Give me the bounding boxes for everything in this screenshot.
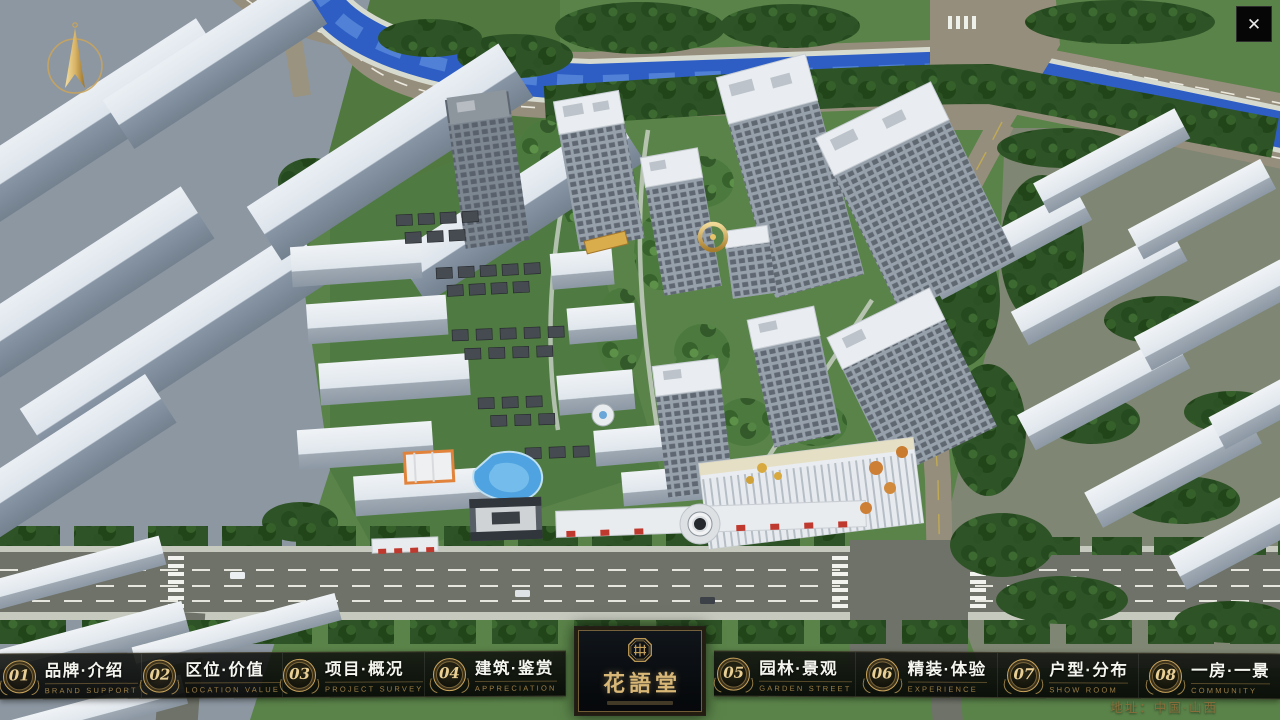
menu-item-interior-experience[interactable]: 06 精装·体验EXPERIENCE — [856, 652, 998, 697]
project-address: 地址：中国·山西 — [1110, 697, 1218, 716]
menu-label-zh: 品牌·介绍 — [45, 657, 124, 681]
menu-label-en: APPRECIATION — [475, 681, 557, 693]
menu-item-architecture[interactable]: 04 建筑·鉴赏APPRECIATION — [425, 652, 567, 697]
menu-number-badge: 08 — [1149, 659, 1182, 692]
nav-group-left: 01 品牌·介绍BRAND SUPPORT 02 区位·价值LOCATION V… — [0, 651, 566, 700]
menu-item-project-overview[interactable]: 03 项目·概况PROJECT SURVEY — [283, 652, 425, 697]
project-name: 花語堂 — [603, 666, 681, 698]
menu-label-en: BRAND SUPPORT — [45, 683, 138, 695]
menu-number-badge: 06 — [866, 658, 899, 691]
menu-number-badge: 02 — [143, 659, 176, 692]
menu-number-badge: 04 — [433, 658, 466, 691]
project-logo-panel[interactable]: 花語堂 — [574, 626, 706, 716]
menu-number-badge: 01 — [3, 660, 36, 693]
menu-item-landscape[interactable]: 05 园林·景观GARDEN STREET — [714, 652, 856, 697]
menu-label-zh: 项目·概况 — [325, 655, 404, 679]
menu-label-en: COMMUNITY — [1191, 683, 1270, 695]
menu-item-brand-intro[interactable]: 01 品牌·介绍BRAND SUPPORT — [0, 654, 142, 699]
nav-group-right: 05 园林·景观GARDEN STREET 06 精装·体验EXPERIENCE… — [714, 651, 1280, 700]
menu-number-badge: 05 — [717, 657, 750, 690]
menu-label-zh: 园林·景观 — [759, 655, 838, 679]
presentation-app: ✕ 01 品牌·介绍BRAND SUPPORT 02 区位·价值LOCATION… — [0, 0, 1280, 720]
masterplan-rendering — [0, 0, 1280, 720]
menu-label-en: PROJECT SURVEY — [325, 682, 423, 695]
close-icon: ✕ — [1247, 16, 1261, 33]
menu-label-en: SHOW ROOM — [1049, 683, 1128, 695]
menu-label-zh: 户型·分布 — [1049, 656, 1128, 680]
menu-number-badge: 07 — [1007, 659, 1040, 692]
menu-label-en: GARDEN STREET — [759, 681, 851, 693]
menu-item-room-view[interactable]: 08 一房·一景COMMUNITY — [1139, 654, 1280, 699]
logo-tagline-rule — [607, 701, 673, 705]
menu-label-en: LOCATION VALUE — [185, 682, 280, 694]
close-button[interactable]: ✕ — [1236, 6, 1272, 42]
menu-label-zh: 一房·一景 — [1191, 657, 1270, 681]
menu-item-location-value[interactable]: 02 区位·价值LOCATION VALUE — [142, 653, 284, 698]
menu-number-badge: 03 — [283, 658, 316, 691]
logo-seal-icon — [627, 637, 653, 663]
menu-label-zh: 精装·体验 — [908, 655, 987, 679]
menu-label-en: EXPERIENCE — [908, 682, 987, 694]
menu-label-zh: 区位·价值 — [185, 656, 264, 680]
menu-item-floorplan-distribution[interactable]: 07 户型·分布SHOW ROOM — [998, 653, 1140, 698]
menu-label-zh: 建筑·鉴赏 — [475, 654, 554, 678]
